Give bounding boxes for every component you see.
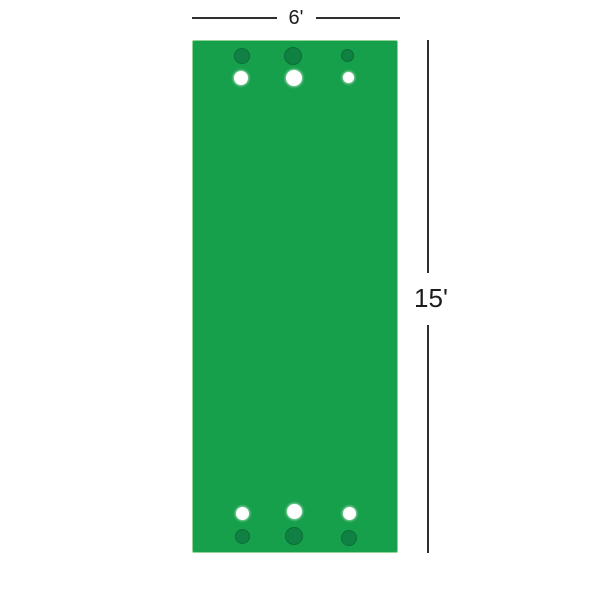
height-dimension-line-top <box>427 40 429 273</box>
ball-circle <box>234 71 248 85</box>
hole-circle <box>341 530 357 546</box>
hole-circle <box>235 529 250 544</box>
ball-circle <box>343 72 354 83</box>
height-dimension-line-bottom <box>427 325 429 553</box>
hole-circle <box>341 49 354 62</box>
green-mat <box>192 40 398 553</box>
diagram-canvas: 6' 15' <box>0 0 600 600</box>
height-dimension-label: 15' <box>414 285 448 311</box>
hole-circle <box>234 48 250 64</box>
ball-circle <box>286 70 302 86</box>
hole-circle <box>284 47 302 65</box>
width-dimension-line-left <box>192 17 277 19</box>
width-dimension-label: 6' <box>289 8 304 28</box>
hole-circle <box>285 527 303 545</box>
width-dimension-line-right <box>316 17 400 19</box>
ball-circle <box>287 504 302 519</box>
ball-circle <box>343 507 356 520</box>
ball-circle <box>236 507 249 520</box>
